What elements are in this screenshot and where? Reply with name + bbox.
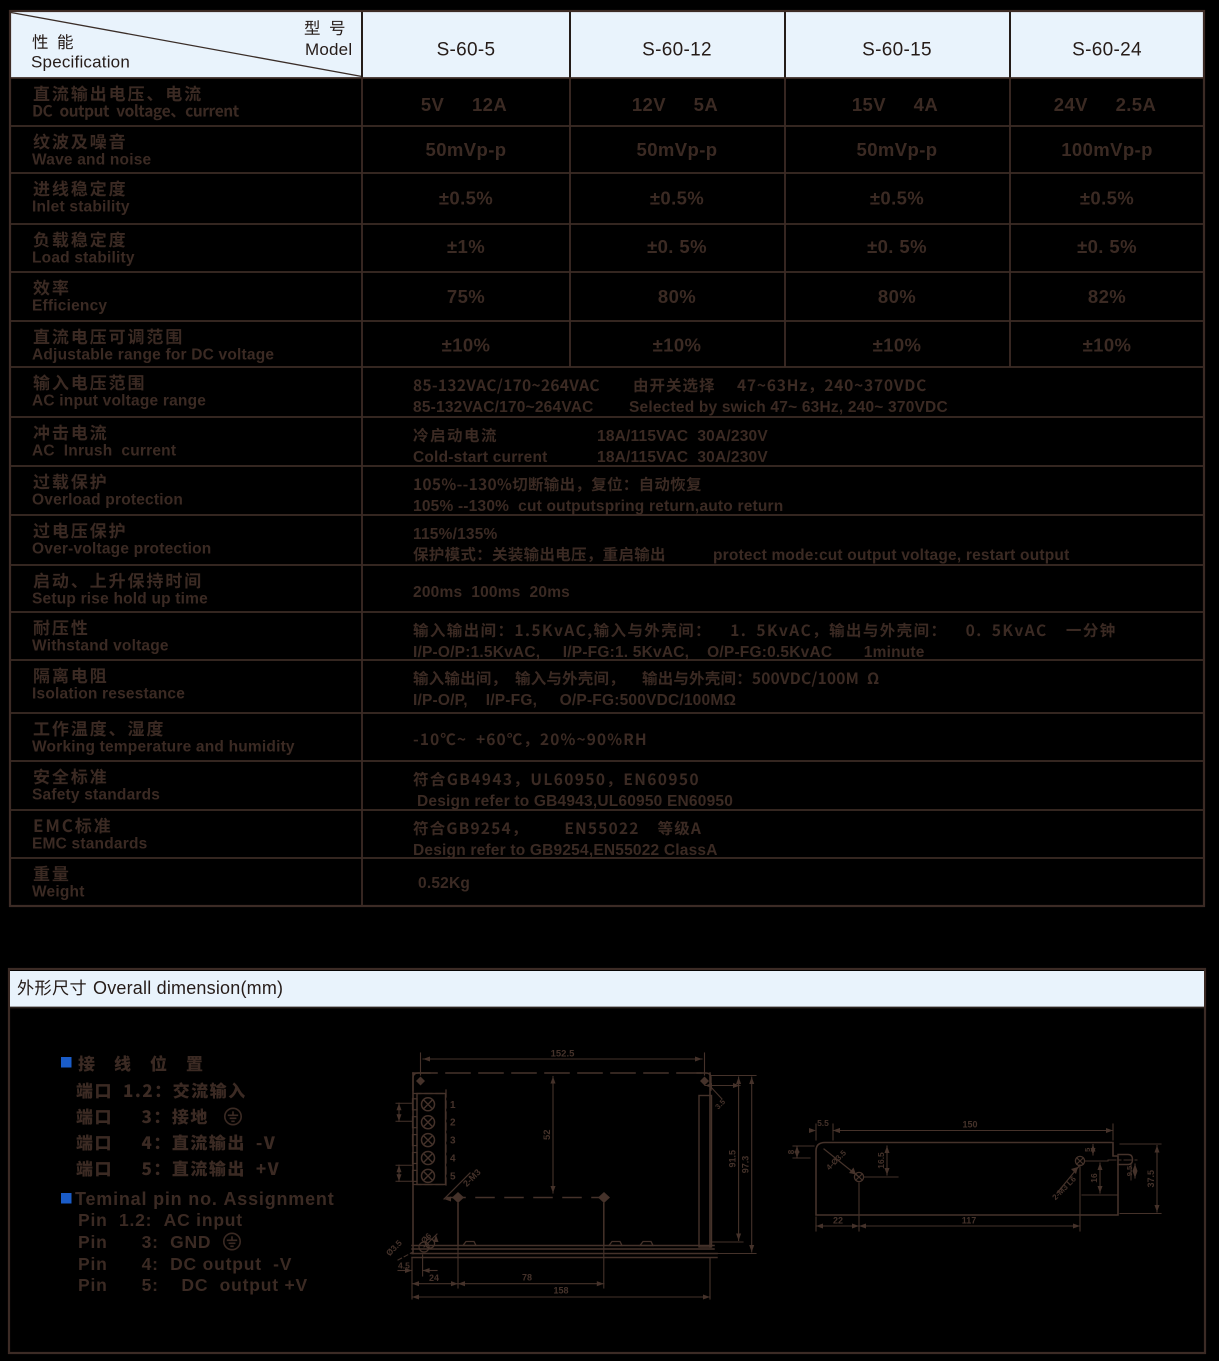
svg-text:3: 3	[450, 1136, 456, 1147]
svg-text:80%: 80%	[658, 286, 696, 307]
svg-text:±0. 5%: ±0. 5%	[867, 236, 927, 257]
svg-text:Selected by swich 47~ 63Hz, 24: Selected by swich 47~ 63Hz, 240~ 370VDC	[629, 399, 948, 416]
svg-text:AC Inrush current: AC Inrush current	[32, 443, 176, 460]
svg-text:±10%: ±10%	[442, 335, 491, 356]
svg-text:±0.5%: ±0.5%	[1080, 188, 1134, 209]
svg-text:18A/115VAC 30A/230V: 18A/115VAC 30A/230V	[597, 428, 768, 445]
svg-text:24V 2.5A: 24V 2.5A	[1054, 94, 1157, 115]
svg-text:Overload protection: Overload protection	[32, 492, 183, 509]
svg-text:16: 16	[1089, 1173, 1099, 1183]
svg-text:±1%: ±1%	[447, 236, 485, 257]
svg-text:9.5: 9.5	[1125, 1166, 1134, 1176]
svg-text:±0. 5%: ±0. 5%	[647, 236, 707, 257]
svg-text:150: 150	[962, 1120, 977, 1130]
svg-text:2: 2	[450, 1118, 456, 1129]
svg-text:Design refer to GB9254,EN55022: Design refer to GB9254,EN55022 ClassA	[413, 842, 718, 859]
svg-text:117: 117	[962, 1216, 977, 1226]
svg-text:18A/115VAC 30A/230V: 18A/115VAC 30A/230V	[597, 449, 768, 466]
svg-text:I/P-O/P:1.5KvAC, I/P-FG:1.: I/P-O/P:1.5KvAC, I/P-FG:1. 5KvAC, O/P-FG…	[413, 644, 925, 661]
svg-text:158: 158	[553, 1286, 568, 1296]
svg-text:Inlet stability: Inlet stability	[32, 199, 130, 216]
svg-text:Efficiency: Efficiency	[32, 298, 107, 315]
svg-text:75%: 75%	[447, 286, 485, 307]
svg-text:200ms 100ms 20ms: 200ms 100ms 20ms	[413, 584, 570, 601]
svg-text:91.5: 91.5	[728, 1150, 738, 1168]
svg-text:Safety standards: Safety standards	[32, 787, 160, 804]
svg-text:Adjustable range for DC voltag: Adjustable range for DC voltage	[32, 347, 274, 364]
svg-text:Working temperature and humidi: Working temperature and humidity	[32, 739, 295, 756]
svg-text:AC input voltage range: AC input voltage range	[32, 393, 206, 410]
svg-text:protect mode:cut output voltag: protect mode:cut output voltage, restart…	[713, 547, 1069, 564]
svg-text:Specification: Specification	[31, 53, 130, 72]
svg-text:1: 1	[450, 1100, 456, 1111]
svg-text:Setup rise hold up time: Setup rise hold up time	[32, 591, 208, 608]
svg-text:Pin 1.2: AC input: Pin 1.2: AC input	[78, 1210, 243, 1230]
svg-text:24: 24	[429, 1273, 439, 1283]
svg-text:Teminal pin no. Assignment: Teminal pin no. Assignment	[75, 1189, 334, 1209]
svg-text:±0. 5%: ±0. 5%	[1077, 236, 1137, 257]
svg-text:Wave and noise: Wave and noise	[32, 152, 152, 169]
svg-text:4: 4	[450, 1154, 456, 1165]
svg-text:Load stability: Load stability	[32, 250, 135, 267]
svg-text:50mVp-p: 50mVp-p	[857, 139, 938, 160]
svg-text:±0.5%: ±0.5%	[870, 188, 924, 209]
svg-text:152.5: 152.5	[551, 1049, 575, 1060]
svg-text:Over-voltage protection: Over-voltage protection	[32, 541, 211, 558]
svg-text:5.5: 5.5	[817, 1118, 829, 1128]
svg-text:Pin 5: DC output +V: Pin 5: DC output +V	[78, 1275, 308, 1295]
svg-text:±0.5%: ±0.5%	[650, 188, 704, 209]
svg-text:Cold-start current: Cold-start current	[413, 449, 548, 466]
svg-text:Overall dimension(mm): Overall dimension(mm)	[93, 978, 283, 998]
svg-text:52: 52	[542, 1129, 553, 1140]
svg-text:Isolation resestance: Isolation resestance	[32, 686, 185, 703]
svg-text:16.5: 16.5	[876, 1152, 886, 1169]
svg-text:5V 12A: 5V 12A	[421, 94, 507, 115]
svg-text:105% --130% cut outputspring: 105% --130% cut outputspring return,auto…	[413, 498, 783, 515]
svg-text:0.52Kg: 0.52Kg	[418, 875, 470, 892]
svg-text:80%: 80%	[878, 286, 916, 307]
svg-text:Weight: Weight	[32, 884, 85, 901]
svg-text:22: 22	[833, 1216, 843, 1226]
svg-text:8: 8	[787, 1149, 796, 1154]
svg-text:4.5: 4.5	[398, 1261, 410, 1271]
svg-text:115%/135%: 115%/135%	[413, 526, 498, 543]
svg-text:S-60-15: S-60-15	[862, 40, 932, 61]
svg-text:±10%: ±10%	[653, 335, 702, 356]
svg-text:Model: Model	[305, 40, 352, 59]
svg-text:12V 5A: 12V 5A	[632, 94, 718, 115]
svg-text:S-60-12: S-60-12	[642, 40, 712, 61]
svg-text:85-132VAC/170~264VAC: 85-132VAC/170~264VAC	[413, 399, 594, 416]
svg-text:100mVp-p: 100mVp-p	[1061, 139, 1153, 160]
svg-text:5: 5	[450, 1171, 456, 1182]
svg-text:Pin 3: GND: Pin 3: GND	[78, 1232, 211, 1252]
svg-text:Design refer to GB4943,UL60950: Design refer to GB4943,UL60950 EN60950	[417, 793, 733, 810]
svg-text:S-60-5: S-60-5	[437, 40, 496, 61]
svg-text:S-60-24: S-60-24	[1072, 40, 1142, 61]
svg-text:±0.5%: ±0.5%	[439, 188, 493, 209]
svg-text:±10%: ±10%	[1083, 335, 1132, 356]
svg-text:I/P-O/P, I/P-FG, O/P-FG: I/P-O/P, I/P-FG, O/P-FG:500VDC/100MΩ	[413, 692, 736, 709]
svg-text:82%: 82%	[1088, 286, 1126, 307]
svg-text:50mVp-p: 50mVp-p	[426, 139, 507, 160]
svg-text:EMC standards: EMC standards	[32, 836, 147, 853]
svg-text:15V 4A: 15V 4A	[852, 94, 938, 115]
svg-text:37.5: 37.5	[1146, 1170, 1156, 1188]
svg-text:78: 78	[522, 1273, 532, 1283]
svg-text:5: 5	[1083, 1148, 1092, 1152]
svg-text:Withstand voltage: Withstand voltage	[32, 638, 169, 655]
svg-text:±10%: ±10%	[873, 335, 922, 356]
svg-text:Pin 4: DC output -V: Pin 4: DC output -V	[78, 1254, 292, 1274]
svg-text:97.3: 97.3	[741, 1156, 751, 1174]
svg-text:50mVp-p: 50mVp-p	[637, 139, 718, 160]
